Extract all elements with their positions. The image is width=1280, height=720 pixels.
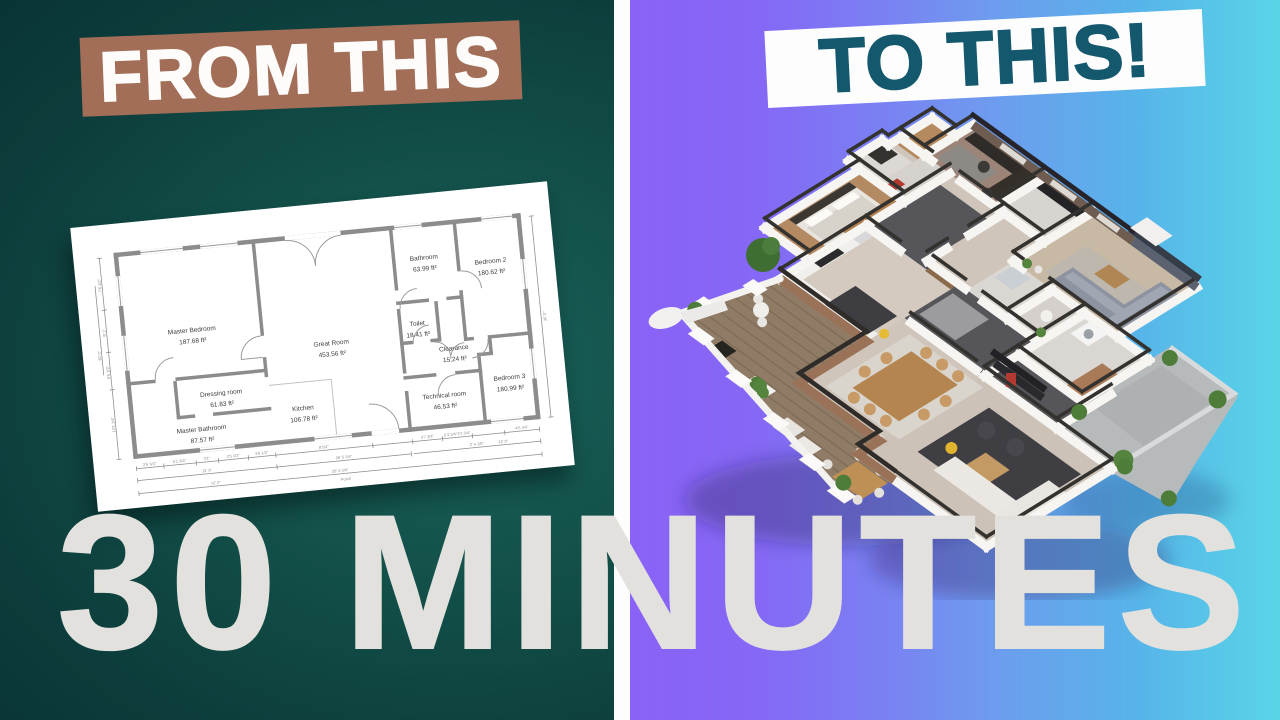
svg-text:3'7 3/4": 3'7 3/4" <box>420 434 434 440</box>
svg-text:Bedroom 3: Bedroom 3 <box>493 373 526 383</box>
svg-text:3'1": 3'1" <box>203 455 211 461</box>
svg-text:26' 5 3/4": 26' 5 3/4" <box>335 454 353 461</box>
svg-text:Dressing room: Dressing room <box>200 388 243 399</box>
svg-text:61.83 ft²: 61.83 ft² <box>210 400 235 409</box>
svg-text:106.78 ft²: 106.78 ft² <box>290 415 319 425</box>
svg-text:87.57 ft²: 87.57 ft² <box>190 436 215 445</box>
svg-text:187.68 ft²: 187.68 ft² <box>179 337 208 347</box>
svg-text:30' 0": 30' 0" <box>542 310 548 321</box>
svg-text:63.99 ft²: 63.99 ft² <box>413 264 438 273</box>
svg-text:Master Bedroom: Master Bedroom <box>168 325 217 337</box>
svg-text:453.56 ft²: 453.56 ft² <box>318 350 347 360</box>
svg-text:3'6 1/2": 3'6 1/2" <box>255 450 269 456</box>
svg-text:2'5 1/2": 2'5 1/2" <box>226 453 240 459</box>
svg-text:Bedroom 2: Bedroom 2 <box>474 257 507 267</box>
svg-text:Kitchen: Kitchen <box>292 404 315 413</box>
svg-text:26' 5 3/4": 26' 5 3/4" <box>332 467 350 474</box>
svg-text:5'1 3/4": 5'1 3/4" <box>173 458 187 464</box>
svg-text:Master Bathroom: Master Bathroom <box>176 424 226 436</box>
svg-text:15.24 ft²: 15.24 ft² <box>443 355 468 364</box>
svg-text:46.53 ft²: 46.53 ft² <box>433 402 458 411</box>
svg-text:2'6 3/4": 2'6 3/4" <box>143 461 157 467</box>
svg-text:180.62 ft²: 180.62 ft² <box>478 268 507 278</box>
svg-text:Great Room: Great Room <box>313 338 349 348</box>
svg-text:Bathroom: Bathroom <box>409 253 438 263</box>
svg-text:2' 4 1/8": 2' 4 1/8" <box>469 441 484 447</box>
svg-text:18.41 ft²: 18.41 ft² <box>406 330 431 339</box>
svg-text:Clearance: Clearance <box>439 344 470 354</box>
svg-text:9' 1": 9' 1" <box>101 328 107 337</box>
svg-text:180.99 ft²: 180.99 ft² <box>497 384 526 394</box>
svg-text:4'5 3/4": 4'5 3/4" <box>515 424 529 430</box>
svg-text:12' 0": 12' 0" <box>202 467 213 473</box>
svg-text:Toilet: Toilet <box>409 320 425 328</box>
svg-text:Technical room: Technical room <box>422 390 466 401</box>
svg-text:8'1/4": 8'1/4" <box>319 444 330 450</box>
svg-text:12' 0": 12' 0" <box>498 438 509 444</box>
svg-text:30' 0": 30' 0" <box>96 350 102 361</box>
